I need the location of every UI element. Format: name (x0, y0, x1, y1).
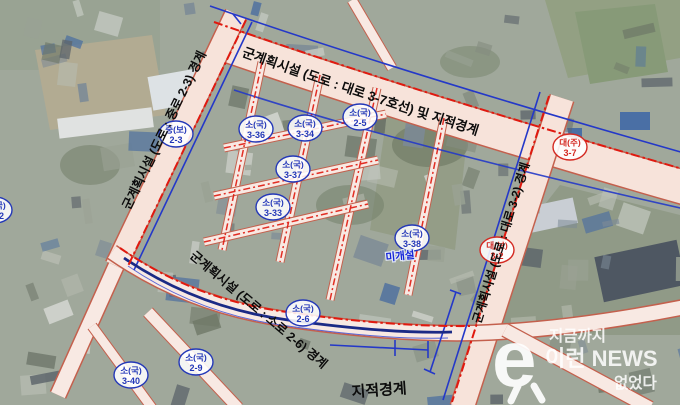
marker-type: 소(국) (349, 108, 371, 118)
building-block (635, 46, 646, 67)
building-block (558, 220, 578, 229)
road-marker: 소(국) 2-5 (343, 104, 377, 130)
road-marker: 소(국) 2-9 (179, 349, 213, 375)
planning-map: 소(국) 3-32 중(보) 2-3 소(국) 3-36 소(국) 3-34 소… (0, 0, 680, 405)
marker-type: 소(국) (0, 201, 6, 211)
marker-type: 소(국) (401, 229, 423, 239)
marker-type: 소(국) (282, 160, 304, 170)
marker-code: 2-5 (353, 118, 366, 128)
marker-type: 대(주) (559, 137, 581, 148)
marker-type: 소(국) (185, 353, 207, 363)
marker-code: 2-9 (189, 363, 202, 373)
marker-type: 소(국) (262, 198, 284, 208)
road-marker: 소(국) 3-37 (276, 156, 310, 182)
marker-type: 소(국) (245, 120, 267, 130)
building-block (641, 78, 672, 88)
marker-code: 3-7 (563, 148, 576, 158)
terrain-patch (575, 4, 668, 84)
road-marker: 소(국) 3-33 (256, 194, 290, 220)
building-block (427, 246, 445, 263)
road-marker: 소(국) 3-38 (395, 225, 429, 251)
building-block (676, 257, 680, 281)
building-block (559, 265, 577, 290)
watermark-line2: 이런 NEWS (545, 346, 658, 371)
marker-code: 2-6 (296, 314, 309, 324)
marker-type: 소(국) (120, 366, 142, 376)
road-marker: 소(국) 2-6 (286, 300, 320, 326)
marker-code: 3-36 (247, 130, 265, 140)
building-blue-roof (620, 112, 650, 130)
marker-code: 3-34 (296, 129, 314, 139)
marker-type: 소(국) (294, 119, 316, 129)
building-block (184, 2, 196, 15)
road-marker: 소(국) 3-40 (114, 362, 148, 388)
marker-code: 2-3 (169, 135, 182, 145)
road-marker: 소(국) 3-36 (239, 116, 273, 142)
marker-code: 3-38 (403, 239, 421, 249)
marker-code: 3-37 (284, 170, 302, 180)
building-block (71, 196, 81, 208)
building-block (57, 61, 78, 87)
marker-code: 3-33 (264, 208, 282, 218)
news-map-image: 소(국) 3-32 중(보) 2-3 소(국) 3-36 소(국) 3-34 소… (0, 0, 680, 405)
marker-type: 소(국) (292, 304, 314, 314)
marker-code: 3-32 (0, 211, 4, 221)
road-marker: 대(주) 3-7 (553, 134, 587, 160)
road-marker: 소(국) 3-34 (288, 115, 322, 141)
building-block (245, 165, 252, 170)
watermark-line1: 지금까지 (549, 327, 606, 345)
marker-code: 3-40 (122, 376, 140, 386)
watermark-line3: 없었다 (614, 373, 658, 392)
